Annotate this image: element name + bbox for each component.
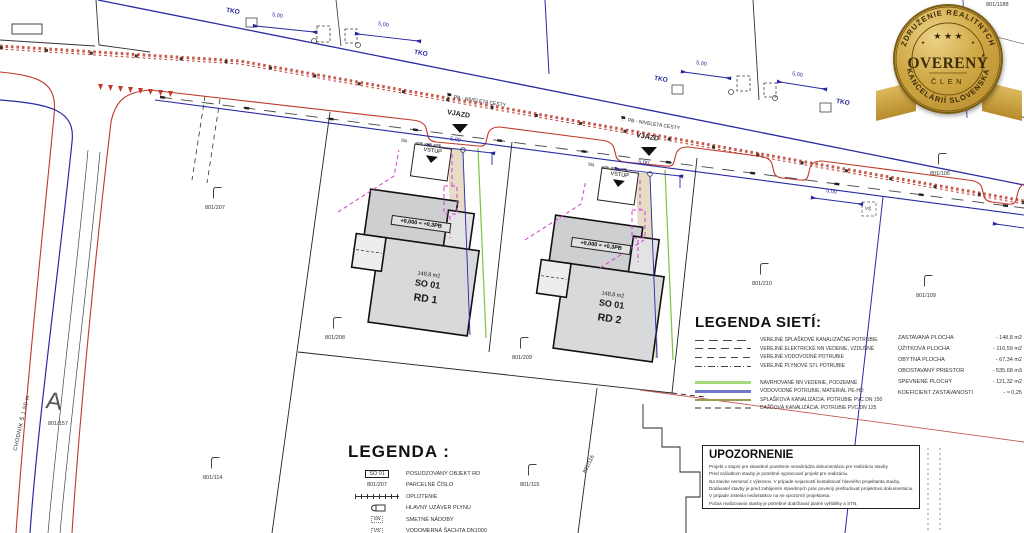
legend-row: NAVRHOVANÉ NN VEDENIE, PODZEMNÉ xyxy=(695,378,913,387)
notice-line: Na stavbe nemerať z výkresov. V prípade … xyxy=(709,478,913,485)
line-sample-sewer-public xyxy=(695,339,751,342)
legend-main: LEGENDA : SO 01 POSUDZOVANÝ OBJEKT RD 80… xyxy=(348,442,588,533)
parcel-number-109: 801/109 xyxy=(916,274,936,299)
side-street xyxy=(0,72,220,533)
flag-icon: ⚑ xyxy=(446,91,453,100)
stat-row: KOEFICIENT ZASTAVANOSTI- ≈ 0,25 xyxy=(898,387,1022,398)
vs-shaft-label: VŠ xyxy=(865,206,872,212)
notice-title: UPOZORNENIE xyxy=(709,449,913,461)
line-sample-rain-proposed xyxy=(695,407,751,410)
notice-box: UPOZORNENIE Projekt v stupni pre stavebn… xyxy=(702,445,920,509)
vstup-label-1: VSTUP xyxy=(423,147,442,155)
parcel-number-207: 801/207 xyxy=(205,186,225,211)
line-sample-water-public xyxy=(695,356,751,359)
legend-row: SO 01 POSUDZOVANÝ OBJEKT RD xyxy=(348,468,588,480)
street-far-side xyxy=(0,0,150,52)
line-sample-gas-public xyxy=(695,365,751,368)
notice-line: Počas realizovania stavby je potrebné do… xyxy=(709,500,913,507)
badge-title: OVERENÝ xyxy=(907,55,988,72)
sn-bins-label-2: SN xyxy=(588,162,595,168)
vstup-gate-1: VSTUP xyxy=(410,144,452,182)
verified-member-badge: ZDRUŽENIE REALITNÝCH KANCELÁRIÍ SLOVENSK… xyxy=(880,0,1016,128)
legend-row: SPLAŠKOVÁ KANALIZÁCIA, POTRUBIE PVC DN 1… xyxy=(695,396,913,405)
site-plan: TKO TKO TKO TKO 5,00 5,00 5,00 5,00 5,00… xyxy=(0,0,1024,533)
bins-symbol: SN xyxy=(371,516,384,523)
parcel-number-210: 801/210 xyxy=(752,262,772,287)
stat-row: ÚŽITKOVÁ PLOCHA- 116,59 m2 xyxy=(898,343,1022,354)
slope-marks xyxy=(98,84,173,97)
notice-line: Dodávateľ stavby je pred zahájením stave… xyxy=(709,485,913,492)
legend-row: DAŽĎOVÁ KANALIZÁCIA, POTRUBIE PVC DN 125 xyxy=(695,404,913,413)
stat-row: ZASTAVANÁ PLOCHA- 148,8 m2 xyxy=(898,332,1022,343)
legend-networks-title: LEGENDA SIETÍ: xyxy=(695,314,913,331)
parcel-number-114: 801/114 xyxy=(203,456,222,481)
notice-side-hatch xyxy=(928,448,940,533)
water-shaft-symbol: VŠ xyxy=(371,528,383,533)
vstup-arrow-2 xyxy=(612,179,625,188)
stat-row: OBOSTAVANÝ PRIESTOR- 535,68 m3 xyxy=(898,365,1022,376)
gas-valve-icon xyxy=(366,503,388,513)
parcel-number-symbol: 801/207 xyxy=(367,482,387,488)
parcel-number-106: 801/106 xyxy=(930,152,950,177)
badge-arc-top: ZDRUŽENIE REALITNÝCH xyxy=(899,8,997,48)
legend-networks: LEGENDA SIETÍ: VEREJNÉ SPLAŠKOVÉ KANALIZ… xyxy=(695,314,913,413)
legend-row: VŠ VODOMERNÁ ŠACHTA DN1000 xyxy=(348,526,588,533)
badge-coin: ZDRUŽENIE REALITNÝCH KANCELÁRIÍ SLOVENSK… xyxy=(893,4,1003,114)
badge-stars: ★ ★ ★ xyxy=(933,31,962,41)
parcel-number-208: 801/208 xyxy=(325,316,345,341)
vstup-gate-2: VSTUP xyxy=(597,168,639,206)
so01-symbol: SO 01 xyxy=(365,470,389,478)
vstup-label-2: VSTUP xyxy=(610,171,629,179)
legend-row: VEREJNÉ ELEKTRICKÉ NN VEDENIE, VZDUŠNÉ xyxy=(695,345,913,354)
line-sample-water-proposed xyxy=(695,390,751,393)
line-sample-sewer-proposed xyxy=(695,399,751,402)
parcel-number-209: 801/209 xyxy=(512,336,532,361)
svg-text:ZDRUŽENIE REALITNÝCH: ZDRUŽENIE REALITNÝCH xyxy=(899,8,997,48)
stat-row: SPEVNENÉ PLOCHY- 121,32 m2 xyxy=(898,376,1022,387)
line-sample-nn-proposed xyxy=(695,381,751,384)
legend-row: VEREJNÉ PLYNOVÉ STL POTRUBIE xyxy=(695,362,913,371)
vjazd-arrow-2 xyxy=(641,147,657,156)
badge-star-right: ★ xyxy=(971,40,976,45)
badge-star-left: ★ xyxy=(921,40,926,45)
badge-subtitle: ČLEN xyxy=(931,77,965,86)
legend-row: SN SMETNÉ NÁDOBY xyxy=(348,514,588,526)
fence-line-symbol xyxy=(355,494,399,499)
legend-row: OPLOTENIE xyxy=(348,491,588,503)
line-sample-electric-public xyxy=(695,347,751,350)
stat-row: OBYTNÁ PLOCHA- 67,34 m2 xyxy=(898,354,1022,365)
legend-main-title: LEGENDA : xyxy=(348,442,588,462)
flag-icon: ⚑ xyxy=(620,114,627,123)
vjazd-arrow-1 xyxy=(452,124,468,133)
legend-row: VEREJNÉ SPLAŠKOVÉ KANALIZAČNÉ POTRUBIE xyxy=(695,336,913,345)
main-street xyxy=(0,0,1024,215)
notice-line: V prípade zistenia nedostatkov na ne upo… xyxy=(709,492,913,499)
legend-row: VODOVODNÉ POTRUBIE, MATERIÁL PE-HD xyxy=(695,387,913,396)
notice-line: Projekt v stupni pre stavebné povolenie … xyxy=(709,463,913,470)
area-statistics: ZASTAVANÁ PLOCHA- 148,8 m2 ÚŽITKOVÁ PLOC… xyxy=(898,332,1022,398)
sn-bins-label-1: SN xyxy=(401,138,408,144)
vstup-arrow-1 xyxy=(425,155,438,164)
parcel-number-157: 801/157 xyxy=(48,422,68,428)
legend-row: VEREJNÉ VODOVODNÉ POTRUBIE xyxy=(695,353,913,362)
legend-row: 801/207 PARCELNÉ ČÍSLO xyxy=(348,480,588,492)
street-symbols xyxy=(246,18,831,175)
notice-line: Pred začiatkom stavby je potrebné vyprac… xyxy=(709,470,913,477)
legend-row: HLAVNÝ UZÁVER PLYNU xyxy=(348,503,588,515)
